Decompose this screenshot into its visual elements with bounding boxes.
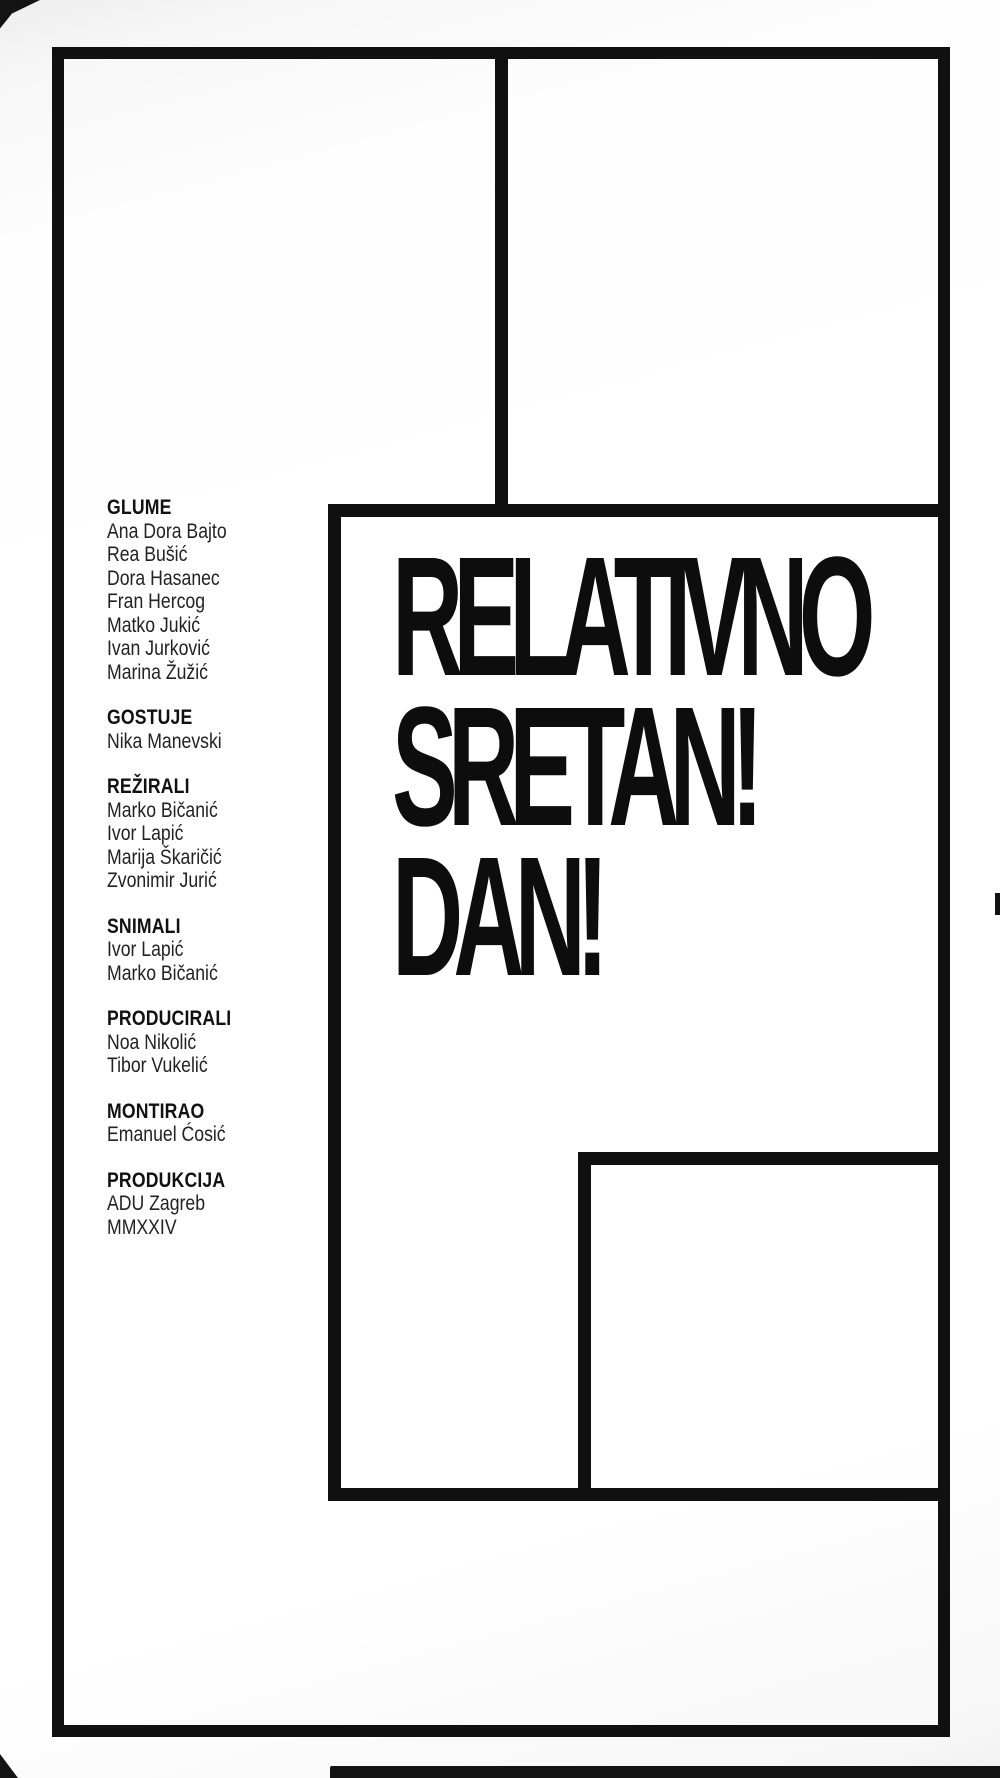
credits-section-heading: REŽIRALI [107,775,309,799]
inner-box-top-line [578,1152,950,1165]
credits-name: MMXXIV [107,1216,309,1240]
credits-name: Dora Hasanec [107,567,309,591]
credits-name: Rea Bušić [107,543,309,567]
title-box-bottom-line [328,1488,950,1501]
credits-name: Marija Škaričić [107,846,309,870]
credits-section-heading: PRODUKCIJA [107,1169,309,1193]
credits-list: GLUMEAna Dora BajtoRea BušićDora Hasanec… [107,496,309,1261]
photo-corner-artifact-top-left [0,0,40,30]
photo-edge-artifact-right [995,893,1000,915]
title-box-left-line [328,504,341,1501]
credits-name: Marko Bičanić [107,799,309,823]
credits-name: Nika Manevski [107,730,309,754]
credits-section-heading: MONTIRAO [107,1100,309,1124]
credits-section: PRODUCIRALINoa NikolićTibor Vukelić [107,1007,309,1078]
credits-section-heading: GLUME [107,496,309,520]
credits-name: Marko Bičanić [107,962,309,986]
credits-name: Fran Hercog [107,590,309,614]
credits-section: SNIMALIIvor LapićMarko Bičanić [107,915,309,986]
credits-name: Ivor Lapić [107,938,309,962]
credits-name: Zvonimir Jurić [107,869,309,893]
credits-name: Matko Jukić [107,614,309,638]
poster-title-line: SRETAN! [392,692,717,842]
credits-section-heading: GOSTUJE [107,706,309,730]
title-box-top-line [328,504,950,517]
credits-section: MONTIRAOEmanuel Ćosić [107,1100,309,1147]
credits-section: GOSTUJENika Manevski [107,706,309,753]
top-vertical-divider-line [495,47,508,517]
credits-name: Marina Žužić [107,661,309,685]
credits-section: REŽIRALIMarko BičanićIvor LapićMarija Šk… [107,775,309,893]
credits-section: GLUMEAna Dora BajtoRea BušićDora Hasanec… [107,496,309,684]
credits-section-heading: PRODUCIRALI [107,1007,309,1031]
photo-edge-artifact-bottom-bar [330,1766,1000,1778]
credits-name: Ivor Lapić [107,822,309,846]
poster-title-line: RELATIVNO [392,542,717,692]
credits-name: Ivan Jurković [107,637,309,661]
credits-name: Emanuel Ćosić [107,1123,309,1147]
poster-photo: RELATIVNOSRETAN!DAN! GLUMEAna Dora Bajto… [0,0,1000,1778]
credits-name: ADU Zagreb [107,1192,309,1216]
credits-name: Noa Nikolić [107,1031,309,1055]
photo-corner-artifact-bottom-left [0,1754,18,1778]
inner-box-left-line [578,1152,591,1501]
poster-title-line: DAN! [392,842,717,992]
poster-title: RELATIVNOSRETAN!DAN! [392,542,717,992]
credits-section: PRODUKCIJAADU ZagrebMMXXIV [107,1169,309,1240]
credits-name: Tibor Vukelić [107,1054,309,1078]
credits-name: Ana Dora Bajto [107,520,309,544]
credits-section-heading: SNIMALI [107,915,309,939]
